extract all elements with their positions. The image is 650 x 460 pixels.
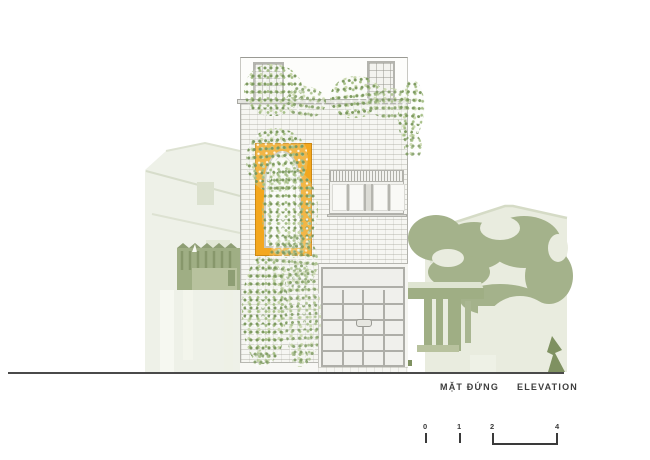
window-pane bbox=[390, 184, 405, 211]
garage-door bbox=[321, 267, 405, 367]
parapet-overhang-vine-right-low bbox=[404, 134, 422, 160]
neighbor-houses-right bbox=[404, 206, 573, 372]
scale-tick-label-4: 4 bbox=[555, 422, 559, 431]
scale-bracket-bottom bbox=[492, 443, 558, 445]
ground-floor-vine-left bbox=[242, 256, 288, 364]
neighbor-fence-left bbox=[177, 243, 240, 290]
scale-bar: 0 1 2 4 bbox=[418, 420, 568, 448]
window-pane bbox=[332, 184, 347, 211]
vine-tail-mid bbox=[292, 348, 308, 367]
window-louver-vent bbox=[330, 171, 403, 182]
vine-tail-left bbox=[252, 350, 270, 367]
garage-door-transom bbox=[323, 269, 403, 288]
window-sill bbox=[327, 214, 407, 217]
scale-bracket-right bbox=[556, 433, 558, 445]
window-panes bbox=[332, 184, 401, 211]
drawing-title-english: ELEVATION bbox=[517, 382, 578, 392]
window-center-mullion bbox=[366, 184, 371, 211]
ground-line bbox=[8, 372, 564, 374]
scale-tick-label-1: 1 bbox=[457, 422, 461, 431]
neighbor-house-left bbox=[145, 143, 240, 372]
second-floor-window bbox=[329, 170, 404, 214]
window-pane bbox=[349, 184, 364, 211]
drawing-title-vietnamese: MẶT ĐỨNG bbox=[440, 382, 499, 392]
scale-tick-0 bbox=[425, 433, 427, 443]
window-pane bbox=[373, 184, 388, 211]
scale-tick-1 bbox=[459, 433, 461, 443]
garage-door-grid bbox=[323, 290, 403, 365]
garage-door-handles bbox=[356, 319, 372, 327]
elevation-drawing-canvas: MẶT ĐỨNG ELEVATION 0 1 2 4 bbox=[0, 0, 650, 460]
scale-tick-label-2: 2 bbox=[490, 422, 494, 431]
scale-tick-label-0: 0 bbox=[423, 422, 427, 431]
